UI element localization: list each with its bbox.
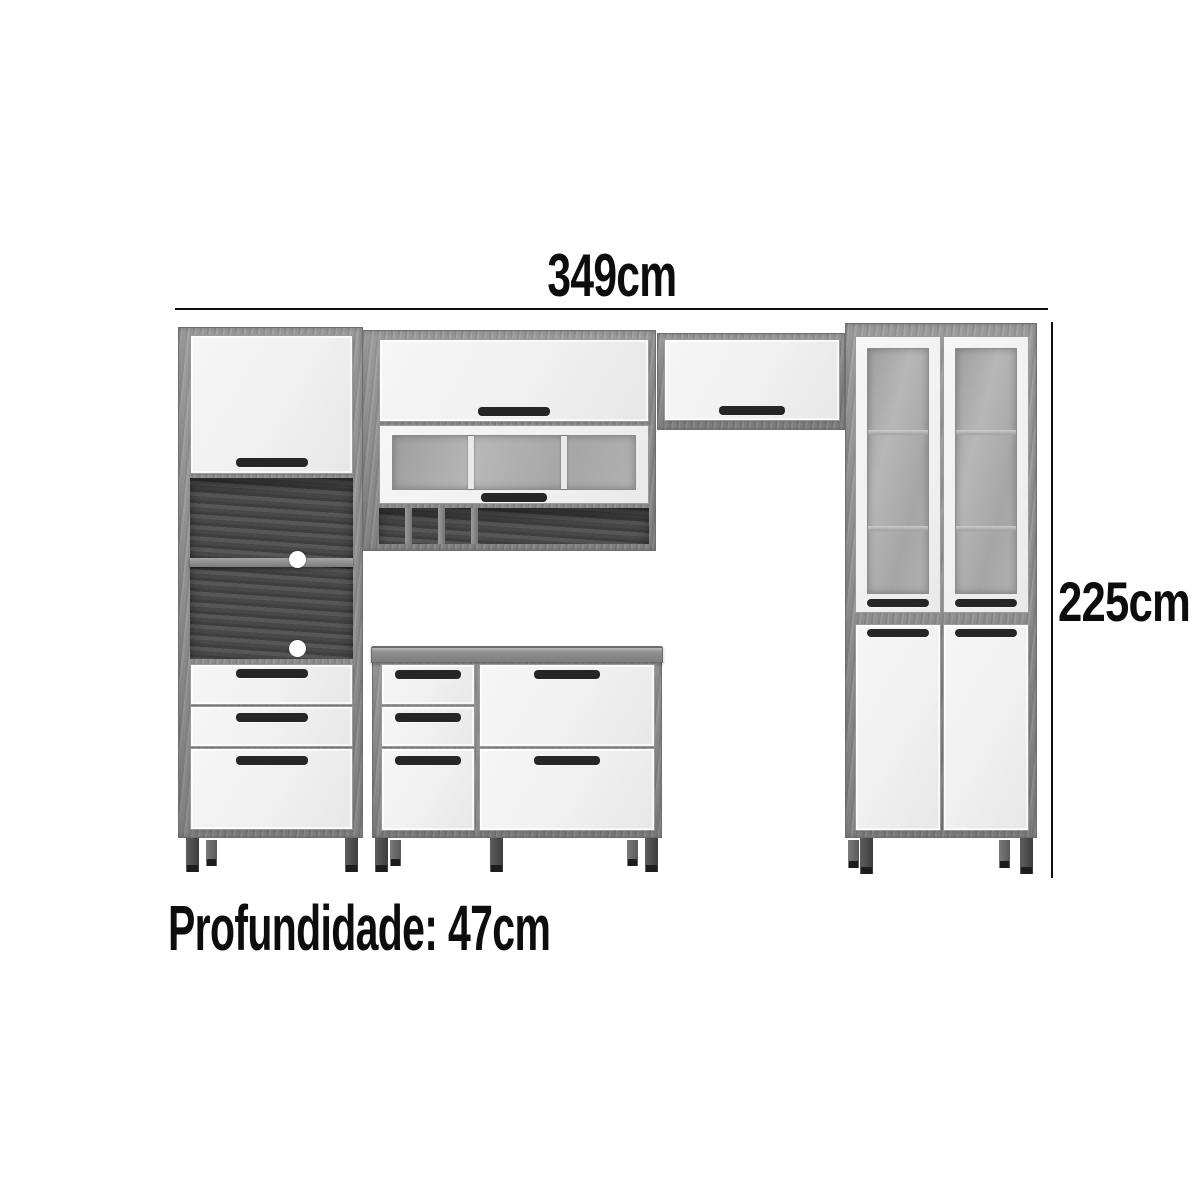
middle-wall-cabinet xyxy=(362,330,656,551)
drawer-handle xyxy=(236,756,308,765)
glass-mullion xyxy=(468,436,474,489)
pantry-lower-door-right xyxy=(943,624,1029,831)
glass-shelf-line xyxy=(956,526,1016,531)
cabinet-leg xyxy=(848,840,859,868)
cabinet-leg xyxy=(206,840,217,866)
pantry-lower-door-left xyxy=(855,624,941,831)
pantry-glass-door-left xyxy=(855,336,941,613)
glass-shelf-line xyxy=(868,430,928,435)
frosted-glass xyxy=(867,348,929,594)
drawer-handle xyxy=(395,756,461,765)
wine-rack-divider xyxy=(438,508,445,544)
base-deep-drawer-left xyxy=(381,748,475,831)
drawer-handle xyxy=(395,713,461,722)
cabinet-leg xyxy=(1020,838,1033,874)
niche-shelf xyxy=(190,558,353,567)
door-handle xyxy=(867,629,929,637)
base-counter-cabinet xyxy=(372,646,662,838)
cabinet-leg xyxy=(627,840,638,866)
middle-wall-flap-door xyxy=(379,339,649,422)
left-tower-open-niche xyxy=(190,478,353,659)
cabinet-leg xyxy=(999,840,1010,868)
drawer-handle xyxy=(236,713,308,722)
wine-rack-divider xyxy=(405,508,412,544)
glass-mullion xyxy=(561,436,567,489)
cable-hole xyxy=(289,551,306,568)
left-tower-cabinet xyxy=(178,327,363,838)
drawer-handle xyxy=(236,669,308,678)
cabinet-leg xyxy=(490,838,503,872)
column-divider xyxy=(476,664,478,831)
depth-dimension-value: Profundidade: 47cm xyxy=(168,896,550,960)
cabinet-leg xyxy=(375,838,388,872)
cabinet-leg xyxy=(390,840,401,866)
base-drawer-1 xyxy=(381,664,475,705)
left-tower-upper-door xyxy=(190,335,353,474)
depth-dimension-label: Profundidade: 47cm xyxy=(168,896,765,960)
drawer-handle xyxy=(534,756,600,765)
width-dimension-line xyxy=(175,308,1048,310)
cabinet-leg xyxy=(645,838,658,872)
left-tower-drawer-1 xyxy=(190,664,353,705)
door-handle xyxy=(955,629,1017,637)
left-tower-deep-drawer xyxy=(190,748,353,830)
door-handle xyxy=(534,670,600,679)
width-dimension-value: 349cm xyxy=(547,246,676,306)
base-deep-drawer-right xyxy=(479,748,655,831)
countertop xyxy=(371,647,663,663)
frosted-glass xyxy=(955,348,1017,594)
bridge-flap-door xyxy=(664,339,840,421)
door-handle xyxy=(236,458,308,467)
glass-shelf-line xyxy=(956,430,1016,435)
base-drawer-2 xyxy=(381,706,475,747)
width-dimension-label: 349cm xyxy=(451,246,772,306)
wine-rack-divider xyxy=(471,508,478,544)
door-handle xyxy=(481,493,547,502)
kitchen-cabinet-dimension-diagram: 349cm 225cm Profundidade: 47cm xyxy=(0,0,1200,1200)
wine-rack-open-shelf xyxy=(379,508,649,544)
cabinet-leg xyxy=(186,838,199,872)
tall-pantry-cabinet xyxy=(845,323,1037,838)
door-handle xyxy=(867,599,929,607)
base-door-right xyxy=(479,664,655,747)
height-dimension-label: 225cm xyxy=(1058,574,1200,630)
cabinet-leg xyxy=(345,838,358,872)
frosted-glass xyxy=(392,435,636,490)
door-handle xyxy=(719,406,785,415)
bridge-wall-cabinet xyxy=(657,333,845,430)
door-handle xyxy=(478,407,550,416)
door-handle xyxy=(955,599,1017,607)
middle-wall-glass-flap-door xyxy=(379,425,649,504)
drawer-handle xyxy=(395,670,461,679)
cabinet-leg xyxy=(860,838,873,874)
left-tower-drawer-2 xyxy=(190,706,353,747)
height-dimension-line xyxy=(1051,322,1053,878)
glass-shelf-line xyxy=(868,526,928,531)
cable-hole xyxy=(289,640,306,657)
pantry-glass-door-right xyxy=(943,336,1029,613)
height-dimension-value: 225cm xyxy=(1058,574,1190,630)
